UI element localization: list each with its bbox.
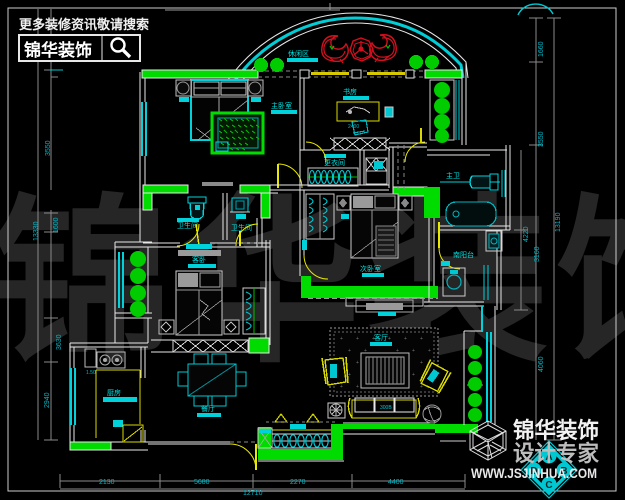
svg-text:2940: 2940: [44, 392, 51, 408]
svg-text:4400: 4400: [388, 479, 404, 486]
svg-text:次卧室: 次卧室: [360, 264, 381, 273]
svg-text:2400: 2400: [348, 124, 359, 130]
svg-text:+: +: [420, 384, 423, 390]
svg-text:南阳台: 南阳台: [453, 250, 474, 259]
svg-text:+: +: [340, 336, 343, 342]
svg-text:1.50: 1.50: [86, 370, 96, 376]
svg-text:厨房: 厨房: [107, 388, 121, 397]
svg-text:+: +: [340, 384, 343, 390]
svg-text:餐厅: 餐厅: [201, 404, 215, 413]
svg-text:锦华装饰: 锦华装饰: [513, 418, 599, 443]
svg-text:+: +: [420, 360, 423, 366]
svg-text:13330: 13330: [33, 221, 40, 241]
svg-text:+: +: [428, 348, 431, 354]
svg-text:4060: 4060: [538, 356, 545, 372]
svg-text:客厅: 客厅: [374, 333, 388, 342]
svg-text:2130: 2130: [99, 479, 115, 486]
svg-text:+: +: [348, 348, 351, 354]
svg-text:13190: 13190: [555, 212, 562, 232]
svg-text:+: +: [388, 336, 391, 342]
svg-text:+: +: [356, 336, 359, 342]
svg-text:3550: 3550: [538, 131, 545, 147]
svg-text:卫生间: 卫生间: [231, 223, 252, 232]
svg-text:卫生间: 卫生间: [177, 221, 198, 230]
svg-text:+: +: [420, 336, 423, 342]
svg-text:更衣间: 更衣间: [324, 158, 345, 167]
svg-text:1600: 1600: [53, 217, 60, 233]
svg-text:12710: 12710: [243, 490, 263, 497]
svg-text:+: +: [356, 360, 359, 366]
svg-text:3630: 3630: [56, 334, 63, 350]
svg-text:+: +: [356, 384, 359, 390]
svg-text:+: +: [404, 336, 407, 342]
svg-text:WWW.JSJINHUA.COM: WWW.JSJINHUA.COM: [471, 466, 597, 481]
svg-text:饰: 饰: [556, 183, 625, 384]
svg-text:3550: 3550: [45, 140, 52, 156]
svg-text:设计专家: 设计专家: [513, 441, 600, 466]
svg-text:更多装修资讯敬请搜索: 更多装修资讯敬请搜索: [19, 17, 149, 32]
svg-text:300B: 300B: [380, 405, 392, 411]
svg-text:锦: 锦: [0, 183, 172, 384]
svg-text:书房: 书房: [343, 87, 357, 96]
svg-text:C: C: [545, 480, 552, 491]
svg-text:锦华装饰: 锦华装饰: [24, 40, 92, 60]
svg-text:1660: 1660: [538, 41, 545, 57]
svg-text:4220: 4220: [523, 226, 530, 242]
svg-text:3160: 3160: [534, 246, 541, 262]
svg-text:+: +: [348, 372, 351, 378]
svg-text:5680: 5680: [194, 479, 210, 486]
svg-text:+: +: [412, 348, 415, 354]
svg-text:+: +: [412, 372, 415, 378]
svg-text:休闲区: 休闲区: [288, 49, 309, 58]
svg-text:主卧室: 主卧室: [271, 101, 292, 110]
svg-text:2270: 2270: [290, 479, 306, 486]
svg-text:主卫: 主卫: [446, 171, 460, 180]
svg-text:客卧: 客卧: [192, 255, 206, 264]
